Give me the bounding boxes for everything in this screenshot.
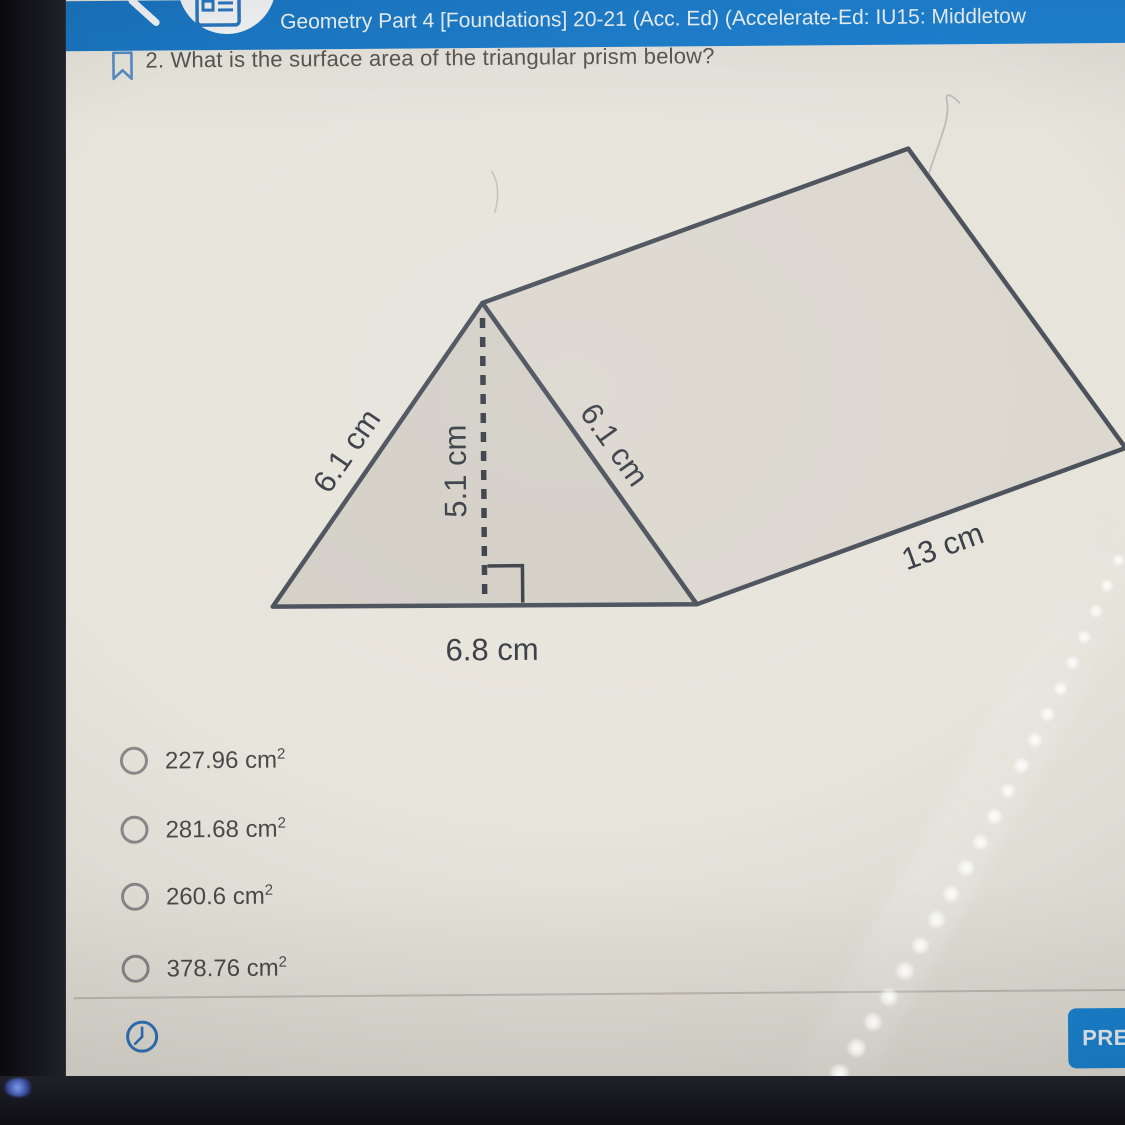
footer-divider <box>74 989 1125 999</box>
radio-button[interactable] <box>120 747 148 775</box>
radio-button[interactable] <box>121 883 149 911</box>
screen-content: Geometry Part 4 [Foundations] 20-21 (Acc… <box>66 0 1125 1076</box>
answer-option-4[interactable]: 378.76 cm2 <box>121 953 287 984</box>
radio-button[interactable] <box>120 816 148 844</box>
monitor-bezel-bottom <box>0 1076 1125 1125</box>
answer-option-3[interactable]: 260.6 cm2 <box>121 881 273 912</box>
screen: Geometry Part 4 [Foundations] 20-21 (Acc… <box>66 0 1125 1076</box>
answer-option-2[interactable]: 281.68 cm2 <box>120 814 286 845</box>
answer-label: 227.96 cm2 <box>165 745 286 775</box>
monitor-bezel-left <box>0 0 66 1125</box>
radio-button[interactable] <box>121 955 149 983</box>
answer-label: 378.76 cm2 <box>166 953 287 983</box>
answer-option-1[interactable]: 227.96 cm2 <box>120 745 286 776</box>
clock-icon[interactable] <box>123 1018 161 1056</box>
scratch-reflection <box>928 95 961 175</box>
scratch-reflection <box>491 171 497 213</box>
prism-diagram: 6.1 cm 5.1 cm 6.1 cm 13 cm 6.8 cm <box>66 0 1125 764</box>
label-base: 6.8 cm <box>445 632 538 668</box>
label-height: 5.1 cm <box>438 425 474 518</box>
power-led-glow <box>4 1078 34 1097</box>
previous-button[interactable]: PRE <box>1068 1008 1125 1069</box>
answer-label: 281.68 cm2 <box>165 814 286 844</box>
answer-label: 260.6 cm2 <box>166 881 273 911</box>
